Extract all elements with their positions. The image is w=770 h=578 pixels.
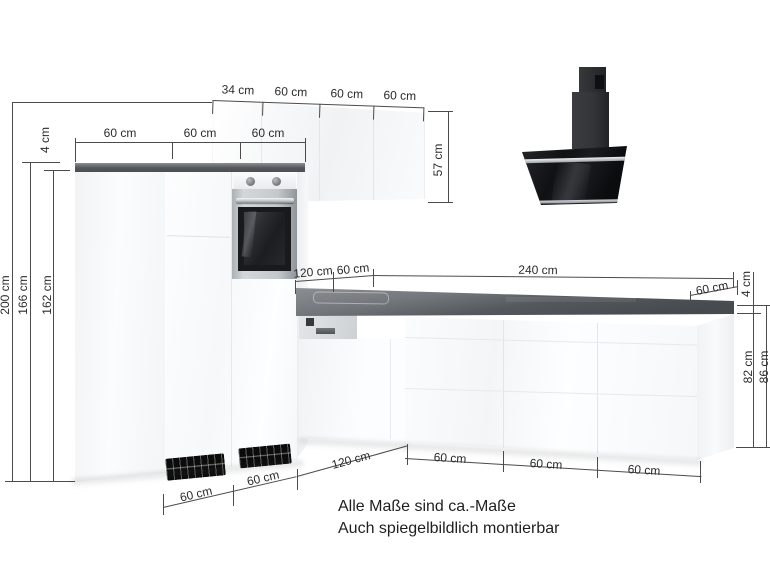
sink-outline	[313, 291, 389, 304]
dim-tick	[75, 138, 76, 162]
niche-detail	[306, 318, 314, 326]
dim-tick	[305, 138, 306, 162]
dim-tick	[12, 102, 212, 103]
dim-tick	[163, 494, 164, 515]
dim-label-worktop-bottom-height: 162 cm	[39, 265, 55, 325]
hood-glass-reflection	[551, 160, 591, 208]
oven-door	[238, 207, 291, 271]
dim-label: 60 cm	[430, 450, 471, 466]
dim-label-upper-height: 57 cm	[430, 130, 446, 190]
dim-tick	[297, 469, 298, 490]
oven-control-panel	[234, 173, 296, 190]
dim-tick	[597, 457, 598, 478]
fridge-door-seam	[167, 235, 230, 238]
right-worktop	[296, 288, 734, 316]
base-cabinet-fronts	[405, 317, 698, 459]
dim-tick	[407, 444, 408, 465]
dim-label: 60 cm	[269, 84, 313, 100]
dim-tick	[44, 170, 70, 171]
dim-tick	[5, 481, 75, 482]
dim-tick	[503, 451, 504, 472]
drawer-seam	[405, 388, 698, 397]
niche-handle	[316, 328, 335, 334]
base-run-side-panel	[697, 314, 734, 460]
dim-tick	[240, 142, 241, 159]
dim-tick	[373, 106, 374, 120]
dim-tick	[172, 142, 173, 159]
oven-knob	[272, 177, 281, 186]
dim-label: 60 cm	[624, 462, 665, 478]
left-worktop	[75, 163, 305, 172]
caption-approx-measures: Alle Maße sind ca.-Maße	[338, 498, 516, 516]
dim-label-depth: 60 cm	[691, 277, 733, 298]
dim-line-162	[53, 170, 54, 481]
dim-label-worktop-top-height: 166 cm	[15, 265, 31, 325]
corner-cabinet-front	[299, 339, 405, 443]
dim-tick	[690, 291, 691, 304]
kitchen-dimension-diagram: 200 cm 166 cm 162 cm 4 cm 60 cm 60 cm 60…	[0, 0, 770, 578]
drawer-seam	[405, 337, 698, 346]
dim-tick	[736, 447, 770, 448]
dim-label-total-height: 200 cm	[0, 265, 13, 325]
dim-tick	[319, 104, 320, 118]
dim-label: 60 cm	[178, 126, 222, 140]
dim-label: 60 cm	[325, 86, 369, 102]
dim-line-left-worktop	[75, 142, 305, 143]
dim-label: 60 cm	[98, 126, 142, 140]
hood-chimney	[572, 92, 609, 149]
dim-label-worktop-thickness: 4 cm	[37, 110, 53, 170]
cabinet-seam	[390, 339, 391, 439]
dim-line-57	[448, 112, 449, 202]
dim-label-total-right: 86 cm	[756, 337, 770, 397]
dim-tick	[428, 202, 453, 203]
dim-tick	[423, 107, 424, 121]
dim-label: 60 cm	[378, 88, 422, 104]
dim-label: 60 cm	[526, 456, 567, 472]
dim-tick	[428, 111, 453, 112]
dim-label: 120 cm	[324, 447, 378, 474]
caption-mirror-mountable: Auch spiegelbildlich montierbar	[338, 520, 559, 538]
dim-tick	[733, 272, 734, 287]
dim-label: 34 cm	[216, 82, 260, 98]
hood-vent-window	[595, 75, 604, 89]
worktop-reflection	[506, 297, 636, 302]
dim-group-upper-cabinets: 34 cm 60 cm 60 cm 60 cm	[212, 80, 426, 123]
oven-handle	[236, 198, 294, 203]
dim-tick	[233, 485, 234, 506]
dim-label: 60 cm	[175, 483, 217, 506]
dim-tick	[295, 280, 296, 294]
dim-label: 240 cm	[510, 263, 566, 278]
hood-glass-panel	[520, 146, 628, 205]
dim-tick	[262, 102, 263, 116]
dim-label-base-height: 82 cm	[740, 337, 756, 397]
oven-knob	[246, 177, 255, 186]
dim-tick	[212, 100, 213, 114]
dim-label: 60 cm	[246, 126, 290, 140]
tall-run-side-panel	[75, 172, 165, 482]
dim-label-right-worktop: 4 cm	[738, 254, 754, 314]
dim-tick	[700, 461, 701, 483]
